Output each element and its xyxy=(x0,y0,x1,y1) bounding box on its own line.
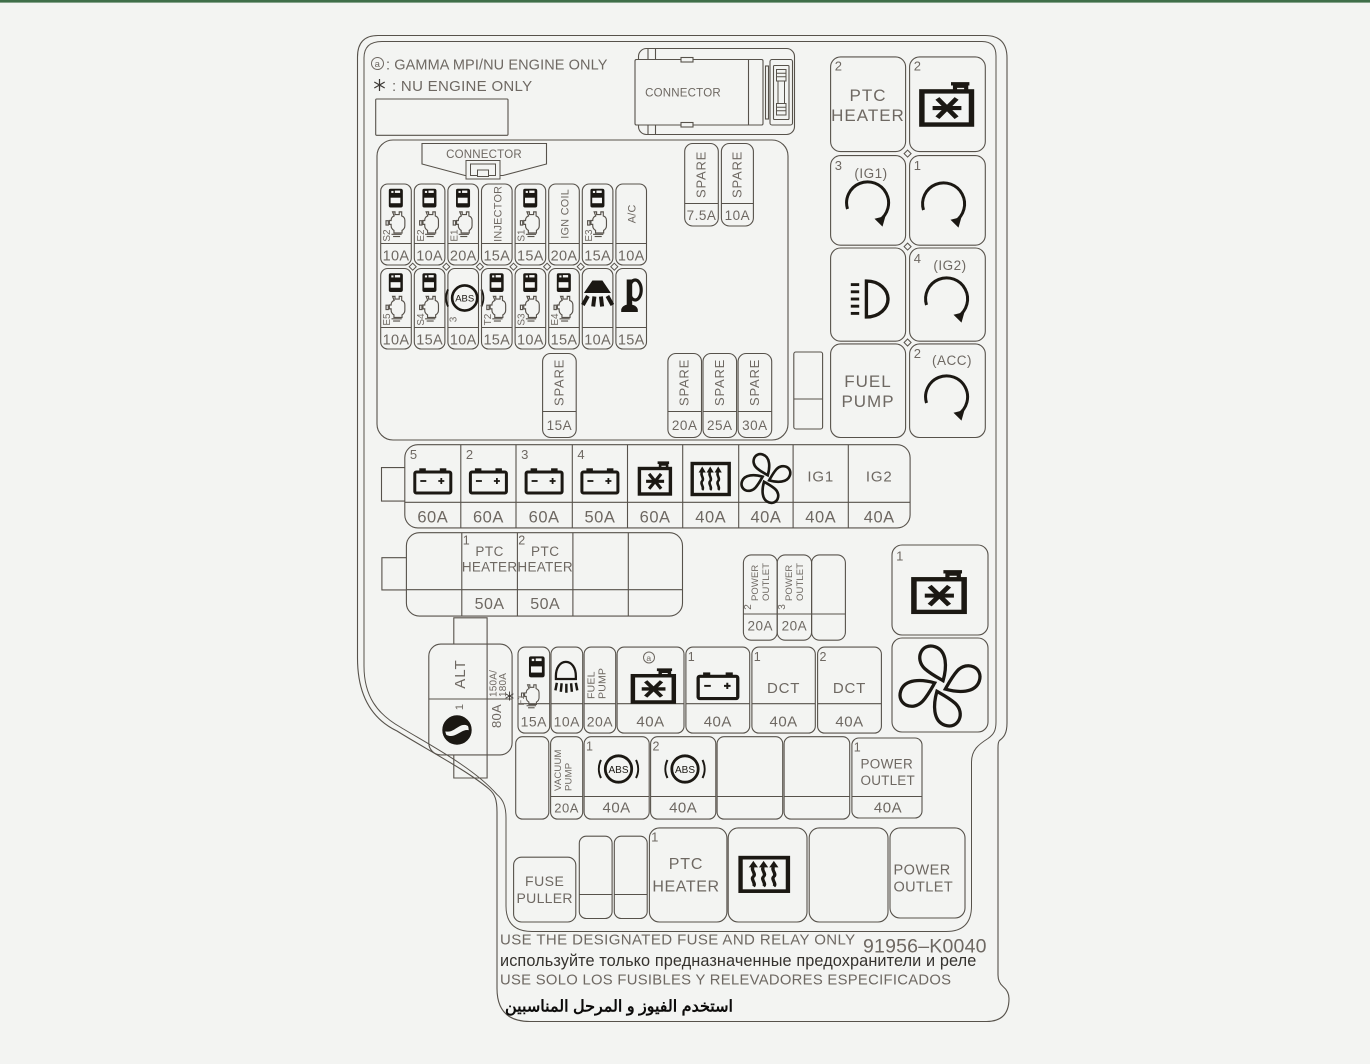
svg-text:HEATER: HEATER xyxy=(652,879,719,896)
svg-text:A/C: A/C xyxy=(627,204,639,223)
svg-text:15A: 15A xyxy=(416,333,443,349)
svg-text:10A: 10A xyxy=(554,714,581,730)
svg-text:40A: 40A xyxy=(835,714,863,731)
svg-text:50A: 50A xyxy=(584,509,615,527)
svg-text:20A: 20A xyxy=(748,619,774,634)
svg-text:OUTLET: OUTLET xyxy=(795,563,806,601)
svg-text:SPARE: SPARE xyxy=(551,359,566,406)
svg-text:40A: 40A xyxy=(864,509,895,527)
svg-text:30A: 30A xyxy=(742,418,768,433)
svg-text:SPARE: SPARE xyxy=(712,359,727,406)
svg-text:1: 1 xyxy=(914,158,922,173)
svg-text:E1: E1 xyxy=(449,229,460,242)
svg-text:DCT: DCT xyxy=(767,680,800,697)
svg-text:E4: E4 xyxy=(550,313,561,326)
svg-text:15A: 15A xyxy=(551,333,578,349)
svg-text:40A: 40A xyxy=(750,509,781,527)
svg-text:50A: 50A xyxy=(475,596,505,613)
svg-text:CONNECTOR: CONNECTOR xyxy=(645,88,721,100)
svg-text:SPARE: SPARE xyxy=(694,151,709,198)
svg-text:DCT: DCT xyxy=(833,680,866,697)
svg-text:ALT: ALT xyxy=(452,659,469,688)
svg-text:15A: 15A xyxy=(521,714,548,730)
svg-text:10A: 10A xyxy=(517,333,544,349)
svg-text:PULLER: PULLER xyxy=(517,890,573,906)
svg-text:2: 2 xyxy=(914,346,922,361)
svg-text:15A: 15A xyxy=(584,249,611,265)
svg-text:1: 1 xyxy=(454,704,466,710)
svg-text:OUTLET: OUTLET xyxy=(761,563,772,601)
svg-text:40A: 40A xyxy=(874,800,902,817)
svg-text:2: 2 xyxy=(743,604,754,610)
svg-text:PTC: PTC xyxy=(531,544,560,559)
svg-text:20A: 20A xyxy=(450,249,477,265)
svg-text:20A: 20A xyxy=(551,249,578,265)
svg-text:15A: 15A xyxy=(618,333,645,349)
svg-text:2: 2 xyxy=(914,59,922,74)
svg-text:60A: 60A xyxy=(529,509,560,527)
svg-text:E5: E5 xyxy=(382,313,393,326)
svg-text:INJECTOR: INJECTOR xyxy=(492,186,504,242)
svg-text:IG2: IG2 xyxy=(866,469,893,486)
svg-text:HEATER: HEATER xyxy=(517,560,573,575)
svg-text:40A: 40A xyxy=(695,509,726,527)
svg-text:1: 1 xyxy=(651,830,659,845)
svg-text:40A: 40A xyxy=(805,509,836,527)
svg-text:2: 2 xyxy=(466,447,474,462)
svg-text:3: 3 xyxy=(521,447,529,462)
svg-text:a: a xyxy=(646,653,651,663)
svg-text:PUMP: PUMP xyxy=(564,763,575,791)
svg-text:20A: 20A xyxy=(554,801,579,816)
svg-text:HEATER: HEATER xyxy=(831,106,905,125)
svg-text:: GAMMA MPI/NU ENGINE ONLY: : GAMMA MPI/NU ENGINE ONLY xyxy=(386,58,608,74)
svg-text:10A: 10A xyxy=(416,249,443,265)
svg-text:15A: 15A xyxy=(547,418,573,433)
svg-text:POWER: POWER xyxy=(784,565,795,601)
svg-text:PUMP: PUMP xyxy=(841,392,894,411)
svg-text:60A: 60A xyxy=(417,509,448,527)
svg-text:POWER: POWER xyxy=(750,565,761,601)
svg-text:40A: 40A xyxy=(602,800,630,817)
svg-text:10A: 10A xyxy=(383,333,410,349)
svg-text:80A: 80A xyxy=(489,704,504,728)
svg-text:POWER: POWER xyxy=(861,757,914,772)
svg-text:1: 1 xyxy=(854,741,861,755)
svg-text:VACUUM: VACUUM xyxy=(553,749,564,791)
svg-text:(ACC): (ACC) xyxy=(932,353,972,368)
svg-text:E3: E3 xyxy=(584,229,595,242)
svg-text:60A: 60A xyxy=(473,509,504,527)
svg-text:S3: S3 xyxy=(517,313,528,326)
svg-text:20A: 20A xyxy=(672,418,698,433)
svg-text:a: a xyxy=(375,59,381,70)
svg-text:1: 1 xyxy=(896,549,904,564)
svg-text:4: 4 xyxy=(577,447,585,462)
svg-text:OUTLET: OUTLET xyxy=(894,880,954,896)
svg-text:10A: 10A xyxy=(618,249,645,265)
svg-text:40A: 40A xyxy=(636,714,664,731)
svg-text:3: 3 xyxy=(448,316,459,322)
svg-text:استخدم الفيوز و المرحل المناسب: استخدم الفيوز و المرحل المناسبين xyxy=(505,999,733,1017)
svg-text:FUSE: FUSE xyxy=(525,873,564,889)
svg-text:5: 5 xyxy=(410,447,418,462)
svg-text:3: 3 xyxy=(835,158,843,173)
svg-text:3: 3 xyxy=(777,604,788,610)
svg-text:PTC: PTC xyxy=(850,86,887,105)
svg-text:20A: 20A xyxy=(587,714,614,730)
svg-text:10A: 10A xyxy=(383,249,410,265)
svg-text:IGN COIL: IGN COIL xyxy=(560,189,572,239)
svg-text:SPARE: SPARE xyxy=(677,359,692,406)
svg-text:2: 2 xyxy=(835,59,843,74)
svg-text:1: 1 xyxy=(463,534,470,548)
svg-text:PTC: PTC xyxy=(669,856,703,873)
svg-text:50A: 50A xyxy=(530,596,560,613)
svg-text:F1: F1 xyxy=(516,694,527,705)
svg-text:40A: 40A xyxy=(669,800,697,817)
svg-text:IG1: IG1 xyxy=(807,469,834,486)
svg-text:2: 2 xyxy=(819,650,826,664)
svg-text:S1: S1 xyxy=(517,229,528,242)
svg-text:: NU ENGINE ONLY: : NU ENGINE ONLY xyxy=(392,78,532,95)
svg-text:PTC: PTC xyxy=(475,544,504,559)
svg-text:S4: S4 xyxy=(416,313,427,326)
svg-text:1: 1 xyxy=(754,650,761,664)
svg-text:10A: 10A xyxy=(725,208,751,223)
svg-text:180A: 180A xyxy=(498,673,509,697)
svg-text:(IG1): (IG1) xyxy=(854,166,887,181)
svg-text:CONNECTOR: CONNECTOR xyxy=(446,149,522,161)
svg-text:T2: T2 xyxy=(483,313,494,325)
svg-text:60A: 60A xyxy=(640,509,671,527)
svg-text:2: 2 xyxy=(518,534,525,548)
svg-text:40A: 40A xyxy=(704,714,732,731)
svg-text:2: 2 xyxy=(652,740,659,754)
svg-text:E2: E2 xyxy=(416,229,427,242)
svg-text:4: 4 xyxy=(914,251,922,266)
svg-text:POWER: POWER xyxy=(894,863,951,879)
svg-text:7.5A: 7.5A xyxy=(687,208,717,223)
svg-text:1: 1 xyxy=(688,650,695,664)
svg-text:10A: 10A xyxy=(584,333,611,349)
svg-text:SPARE: SPARE xyxy=(729,151,744,198)
svg-text:S2: S2 xyxy=(382,229,393,242)
svg-text:15A: 15A xyxy=(483,333,510,349)
svg-text:OUTLET: OUTLET xyxy=(861,773,915,788)
svg-text:15A: 15A xyxy=(483,249,510,265)
svg-text:используйте только предназначе: используйте только предназначенные предо… xyxy=(500,952,976,970)
svg-text:15A: 15A xyxy=(517,249,544,265)
svg-text:HEATER: HEATER xyxy=(462,560,518,575)
svg-text:USE THE DESIGNATED FUSE AND RE: USE THE DESIGNATED FUSE AND RELAY ONLY xyxy=(500,932,856,949)
svg-text:USE SOLO LOS FUSIBLES Y RELEVA: USE SOLO LOS FUSIBLES Y RELEVADORES ESPE… xyxy=(500,973,951,989)
svg-text:FUEL: FUEL xyxy=(844,372,891,391)
svg-text:40A: 40A xyxy=(769,714,797,731)
svg-text:PUMP: PUMP xyxy=(597,668,609,699)
svg-text:10A: 10A xyxy=(450,333,477,349)
svg-text:1: 1 xyxy=(586,740,593,754)
svg-text:20A: 20A xyxy=(782,619,808,634)
svg-text:25A: 25A xyxy=(707,418,733,433)
svg-text:SPARE: SPARE xyxy=(747,359,762,406)
svg-text:(IG2): (IG2) xyxy=(933,258,966,273)
